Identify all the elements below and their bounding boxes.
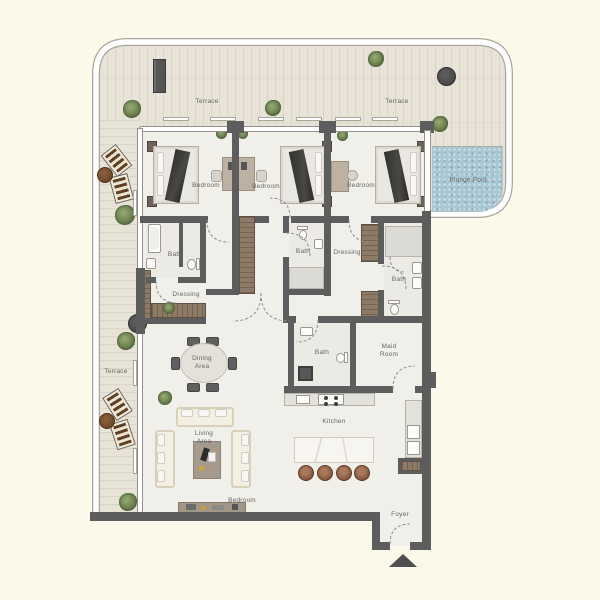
bedroom-2-label: Bedroom xyxy=(252,182,280,190)
door-arc-living-left xyxy=(233,293,261,321)
door-arc-bedroom1 xyxy=(207,220,229,242)
door-arc-living-right xyxy=(261,293,289,321)
terrace-label-top-left: Terrace xyxy=(195,97,218,105)
living-area-label: Living Area xyxy=(195,429,213,445)
bath-1-label: Bath xyxy=(168,250,182,258)
bedroom-living-label: Bedroom xyxy=(228,496,256,504)
door-arcs xyxy=(0,0,600,600)
foyer-label: Foyer xyxy=(391,510,409,518)
maid-room-label: Maid Room xyxy=(380,342,398,358)
door-arc-foyer xyxy=(390,524,410,544)
bath-3-label: Bath xyxy=(392,275,406,283)
terrace-label-left: Terrace xyxy=(104,367,127,375)
bath-2-label: Bath xyxy=(296,247,310,255)
bedroom-1-label: Bedroom xyxy=(192,181,220,189)
door-arc-bath4 xyxy=(296,320,318,342)
floor-plan: Plunge Pool xyxy=(0,0,600,600)
dressing-2-label: Dressing xyxy=(333,248,360,256)
dressing-1-label: Dressing xyxy=(172,290,199,298)
kitchen-label: Kitchen xyxy=(322,417,345,425)
bedroom-3-label: Bedroom xyxy=(347,181,375,189)
door-arc-bedroom3 xyxy=(349,220,371,242)
dining-area-label: Dining Area xyxy=(192,354,212,370)
door-arc-maid xyxy=(393,366,415,389)
door-arc-bedroom2 xyxy=(270,198,290,218)
terrace-label-top-right: Terrace xyxy=(385,97,408,105)
bath-4-label: Bath xyxy=(315,348,329,356)
